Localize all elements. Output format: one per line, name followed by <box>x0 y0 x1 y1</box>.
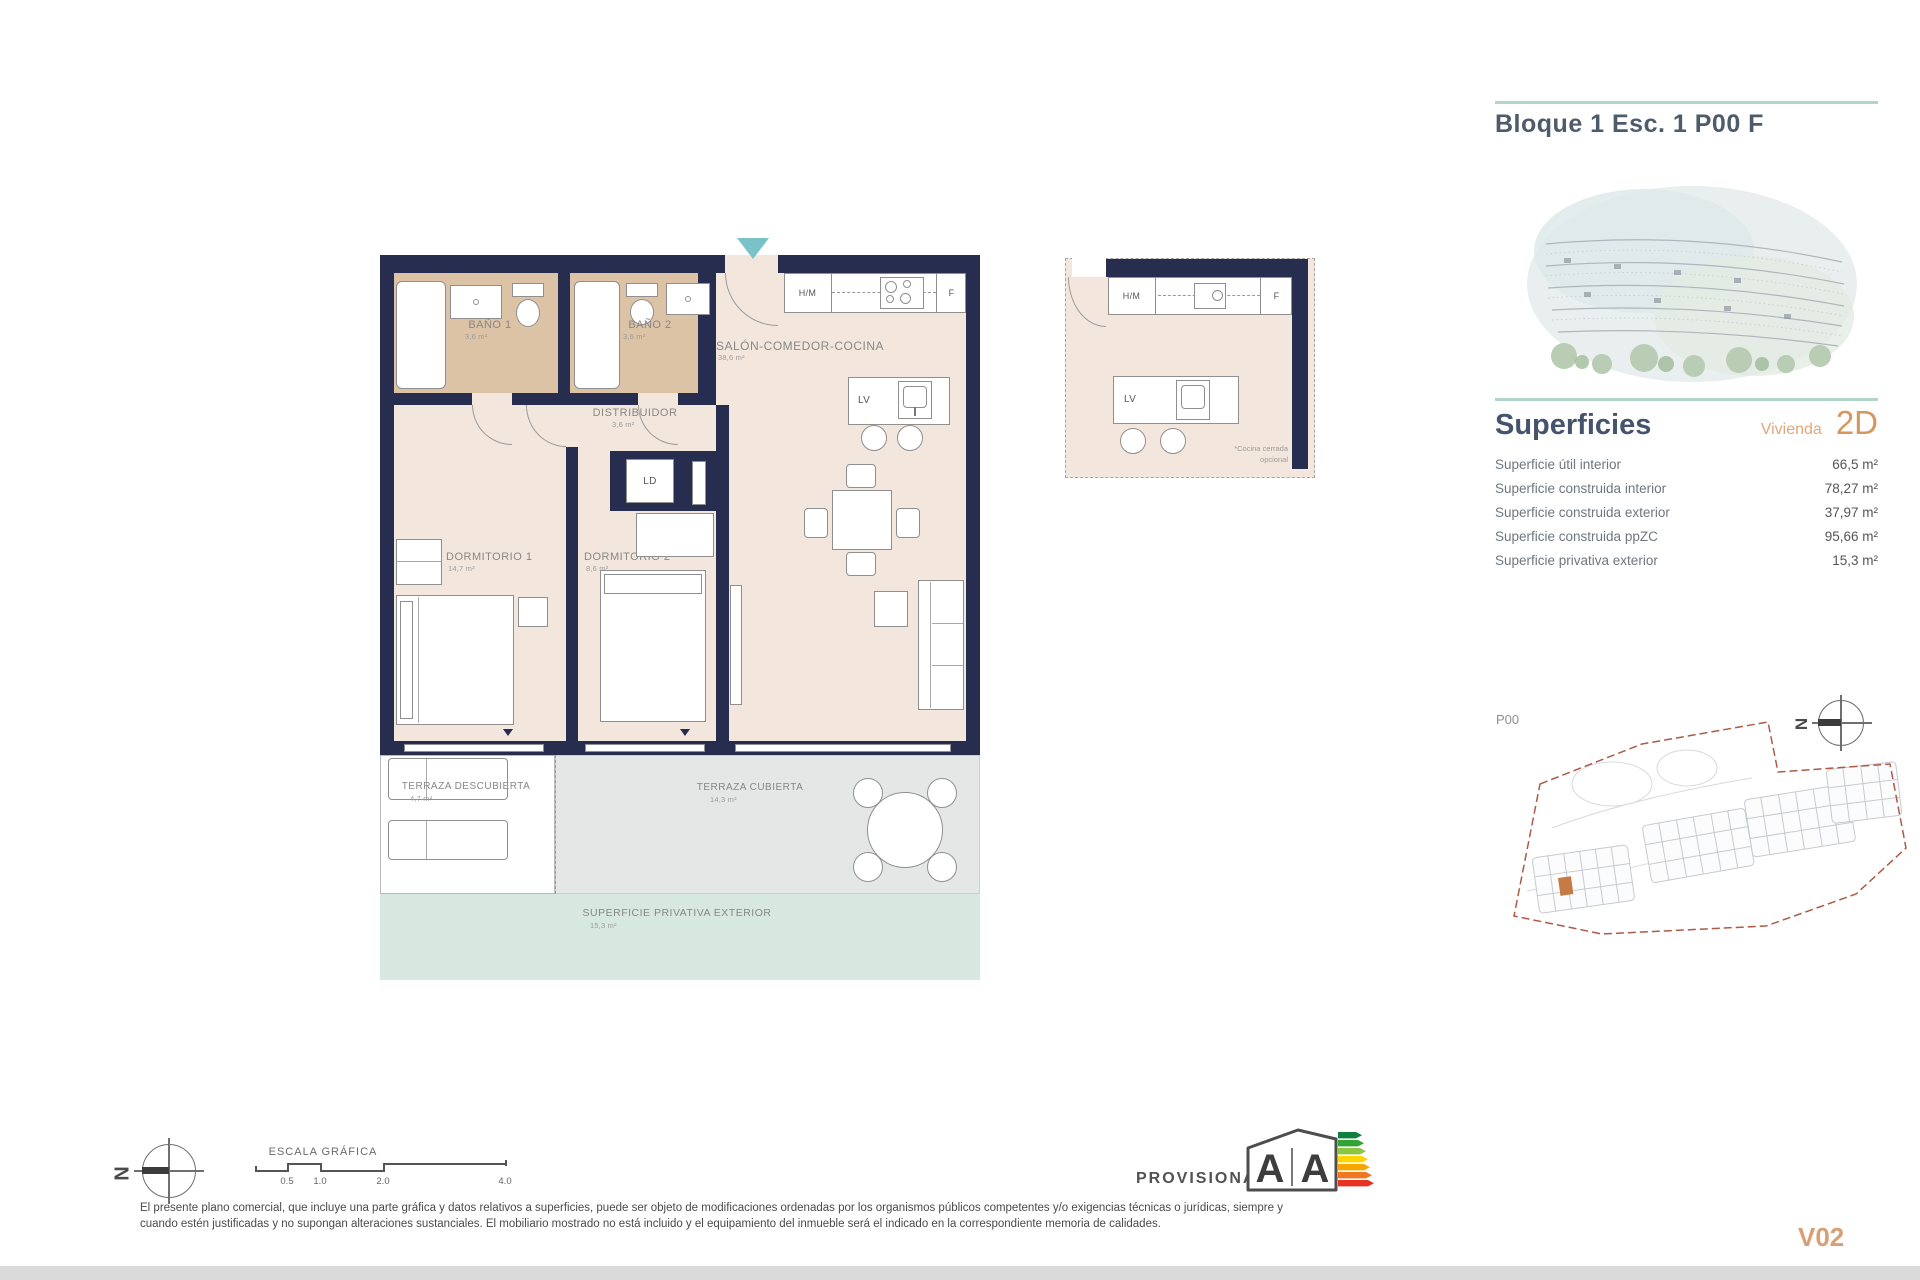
wall-segment <box>380 255 725 273</box>
sink-basin <box>903 386 927 408</box>
sink-basin <box>1212 290 1223 301</box>
dining-chair <box>846 552 876 576</box>
window-glass <box>585 744 705 752</box>
washer-dryer-label: H/M <box>1123 291 1140 301</box>
scale-bar-tick <box>320 1163 322 1172</box>
sofa-line <box>932 665 963 666</box>
shower-tray <box>574 281 620 389</box>
plan-sheet: BAÑO 1 3,6 m² BAÑO 2 3,6 m² DISTRIBUIDOR… <box>0 0 1920 1280</box>
room-label: TERRAZA DESCUBIERTA <box>384 781 548 792</box>
disclaimer-line2: cuando estén justificadas y no supongan … <box>140 1216 1450 1232</box>
scale-tick-label: 2.0 <box>368 1176 398 1187</box>
page-title: Bloque 1 Esc. 1 P00 F <box>1495 110 1764 139</box>
room-area: 14,3 m² <box>710 795 737 804</box>
wall-segment <box>678 393 716 405</box>
building-rendering <box>1524 166 1860 394</box>
basin-dot <box>685 296 691 302</box>
basin-dot <box>473 299 479 305</box>
laundry-label: LD <box>643 476 656 487</box>
sofa-line <box>932 623 963 624</box>
hob-burner <box>885 281 897 293</box>
side-table <box>874 591 908 627</box>
table-row: Superficie útil interior66,5 m² <box>1495 452 1878 476</box>
disclaimer-line1: El presente plano comercial, que incluye… <box>140 1200 1450 1216</box>
row-value: 95,66 m² <box>1825 529 1878 544</box>
row-label: Superficie construida interior <box>1495 481 1666 496</box>
room-label: DISTRIBUIDOR <box>580 407 690 419</box>
window-glass <box>404 744 544 752</box>
row-value: 78,27 m² <box>1825 481 1878 496</box>
inset-note-line2: opcional <box>1204 454 1288 465</box>
row-value: 66,5 m² <box>1832 457 1878 472</box>
superficies-table: Superficie útil interior66,5 m² Superfic… <box>1495 452 1878 572</box>
bathroom1-label: BAÑO 1 <box>468 319 511 331</box>
bottom-bar <box>0 1266 1920 1280</box>
divider-rule <box>1495 398 1878 401</box>
wall-segment <box>1106 259 1294 277</box>
door-gap <box>1072 257 1106 277</box>
wall-segment <box>558 273 570 393</box>
room-area: 4,7 m² <box>410 794 432 803</box>
kitchen-option-inset: H/M F LV *Cocina cerrada opcional <box>1065 258 1315 478</box>
nightstand <box>518 597 548 627</box>
patio-table <box>867 792 943 868</box>
scale-bar-segment <box>383 1163 505 1165</box>
plan-compass: N <box>112 1142 212 1204</box>
door-direction-icon <box>503 729 513 736</box>
scale-bar-tick <box>287 1163 289 1172</box>
room-label: BAÑO 2 <box>595 319 705 331</box>
toilet-tank <box>626 283 658 297</box>
floor-plan: BAÑO 1 3,6 m² BAÑO 2 3,6 m² DISTRIBUIDOR… <box>380 255 980 980</box>
scale-bar-segment <box>320 1170 383 1172</box>
row-value: 37,97 m² <box>1825 505 1878 520</box>
scale-bar-tick <box>383 1163 385 1172</box>
table-row: Superficie construida interior78,27 m² <box>1495 476 1878 500</box>
door-arc <box>1068 277 1106 327</box>
dishwasher-label: LV <box>1124 394 1136 405</box>
dining-chair <box>846 464 876 488</box>
row-label: Superficie construida ppZC <box>1495 529 1658 544</box>
counter-cell: H/M <box>784 273 832 313</box>
vivienda-label: Vivienda <box>1761 421 1822 438</box>
bathroom2-label: BAÑO 2 <box>628 319 671 331</box>
lounger-line <box>426 759 427 799</box>
faucet <box>914 407 916 416</box>
scale-bar-tick <box>255 1166 257 1172</box>
scale-tick-label: 0.5 <box>272 1176 302 1187</box>
table-row: Superficie privativa exterior15,3 m² <box>1495 548 1878 572</box>
dining-chair <box>804 508 828 538</box>
scale-bar-segment <box>255 1170 287 1172</box>
row-label: Superficie privativa exterior <box>1495 553 1658 568</box>
scale-bar-segment <box>287 1163 320 1165</box>
fridge-label: F <box>1274 291 1280 301</box>
hob-burner <box>900 293 911 304</box>
room-label: DORMITORIO 1 <box>446 551 532 563</box>
disclaimer: El presente plano comercial, que incluye… <box>140 1200 1450 1232</box>
living-label: SALÓN-COMEDOR-COCINA <box>716 339 884 353</box>
room-label: BAÑO 1 <box>435 319 545 331</box>
sliding-door-glass <box>735 744 951 752</box>
wall-segment <box>1292 259 1308 469</box>
table-row: Superficie construida ppZC95,66 m² <box>1495 524 1878 548</box>
room-area: 3,6 m² <box>612 420 634 429</box>
stool <box>897 425 923 451</box>
room-area: 14,7 m² <box>448 564 475 573</box>
scale-tick-label: 1.0 <box>305 1176 335 1187</box>
dining-table <box>832 490 892 550</box>
lounger-line <box>426 821 427 859</box>
wall-segment <box>512 393 638 405</box>
bed-line <box>418 597 419 723</box>
wall-segment <box>566 447 578 741</box>
row-value: 15,3 m² <box>1832 553 1878 568</box>
energy-letter-right: A <box>1301 1147 1330 1191</box>
hall-label: DISTRIBUIDOR <box>593 407 678 419</box>
inset-note-line1: *Cocina cerrada <box>1204 443 1288 454</box>
room-label: TERRAZA CUBIERTA <box>670 782 830 793</box>
entrance-marker-icon <box>737 238 769 259</box>
sink-basin <box>1181 385 1205 409</box>
room-area: 15,3 m² <box>590 921 617 930</box>
scale-bar-tick <box>505 1160 507 1166</box>
wall-segment <box>966 273 980 755</box>
vivienda-code: 2D <box>1836 404 1878 441</box>
row-label: Superficie útil interior <box>1495 457 1621 472</box>
compass-n-letter: N <box>112 1166 135 1180</box>
private-exterior-label: SUPERFICIE PRIVATIVA EXTERIOR <box>583 907 772 919</box>
fridge-label: F <box>949 288 955 298</box>
highlighted-unit <box>1558 876 1573 896</box>
energy-scale-arrows <box>1338 1132 1374 1186</box>
scale-tick-label: 4.0 <box>490 1176 520 1187</box>
bedroom1-label: DORMITORIO 1 <box>446 551 532 563</box>
sun-lounger <box>388 758 508 800</box>
room-area: 38,6 m² <box>718 353 745 362</box>
energy-rating-icon: A A <box>1238 1124 1378 1200</box>
shower-tray <box>396 281 446 389</box>
terrace-covered-label: TERRAZA CUBIERTA <box>697 782 804 793</box>
desk <box>636 513 714 557</box>
hob-burner <box>903 280 911 288</box>
terrace-uncovered-label: TERRAZA DESCUBIERTA <box>402 781 531 792</box>
laundry-closet: LD <box>626 459 674 503</box>
room-label: SUPERFICIE PRIVATIVA EXTERIOR <box>527 907 827 919</box>
room-label: SALÓN-COMEDOR-COCINA <box>716 339 884 353</box>
wall-segment <box>394 393 472 405</box>
sofa <box>918 580 964 710</box>
compass-n-letter: N <box>1792 718 1812 730</box>
vivienda-group: Vivienda2D <box>1761 404 1878 442</box>
version-label: V02 <box>1798 1222 1844 1253</box>
room-area: 3,6 m² <box>623 332 645 341</box>
siteplan-compass: N <box>1796 698 1886 750</box>
stool <box>1120 428 1146 454</box>
counter-cell: F <box>1260 277 1292 315</box>
compass-north-bar <box>1818 719 1841 726</box>
superficies-header: Superficies Vivienda2D <box>1495 404 1878 446</box>
row-label: Superficie construida exterior <box>1495 505 1670 520</box>
hob-burner <box>886 295 894 303</box>
inset-note: *Cocina cerrada opcional <box>1204 443 1288 465</box>
closet-door <box>692 461 706 505</box>
stool <box>1160 428 1186 454</box>
wall-segment <box>380 273 394 755</box>
sofa-line <box>930 582 931 708</box>
wall-segment <box>778 255 980 273</box>
energy-letter-left: A <box>1256 1147 1285 1191</box>
wall-segment <box>716 405 729 741</box>
table-row: Superficie construida exterior37,97 m² <box>1495 500 1878 524</box>
washer-dryer-label: H/M <box>799 288 816 298</box>
wardrobe <box>396 539 442 585</box>
room-area: 3,6 m² <box>465 332 487 341</box>
divider-rule <box>1495 101 1878 104</box>
stool <box>861 425 887 451</box>
terrace-divider <box>555 755 556 894</box>
bed <box>396 595 514 725</box>
scale-label: ESCALA GRÁFICA <box>268 1146 378 1158</box>
dishwasher-label: LV <box>858 395 870 406</box>
counter-cell: F <box>936 273 966 313</box>
toilet-tank <box>512 283 544 297</box>
counter-cell: H/M <box>1108 277 1156 315</box>
superficies-heading: Superficies <box>1495 409 1651 442</box>
sun-lounger <box>388 820 508 860</box>
wardrobe-line <box>397 561 441 562</box>
pillow <box>400 601 413 719</box>
door-direction-icon <box>680 729 690 736</box>
tv-unit <box>730 585 742 705</box>
dining-chair <box>896 508 920 538</box>
pillow <box>604 574 702 594</box>
compass-north-bar <box>142 1167 169 1174</box>
